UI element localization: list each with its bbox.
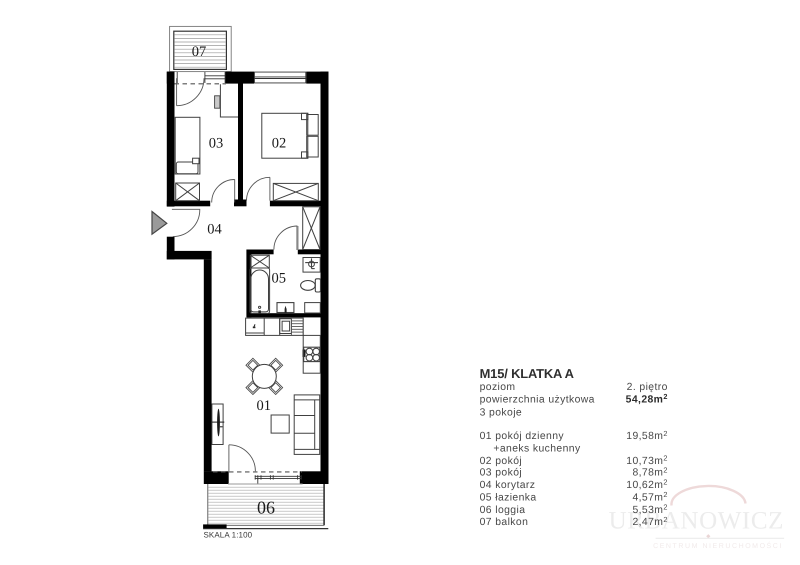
svg-text:02 pokój: 02 pokój xyxy=(480,456,522,467)
svg-text:+aneks kuchenny: +aneks kuchenny xyxy=(493,444,581,455)
svg-text:3 pokoje: 3 pokoje xyxy=(480,407,522,418)
svg-text:2. piętro: 2. piętro xyxy=(627,382,668,393)
svg-text:19,58m2: 19,58m2 xyxy=(626,429,668,442)
svg-text:04 korytarz: 04 korytarz xyxy=(480,480,536,491)
svg-text:03 pokój: 03 pokój xyxy=(480,468,522,479)
svg-text:4,57m2: 4,57m2 xyxy=(632,490,667,503)
svg-text:06: 06 xyxy=(257,497,275,517)
svg-text:05 łazienka: 05 łazienka xyxy=(480,492,537,503)
svg-text:04: 04 xyxy=(207,222,222,238)
svg-text:CENTRUM NIERUCHOMOŚCI: CENTRUM NIERUCHOMOŚCI xyxy=(653,541,783,550)
svg-text:M15/ KLATKA A: M15/ KLATKA A xyxy=(480,366,574,381)
svg-text:54,28m2: 54,28m2 xyxy=(626,392,668,405)
svg-text:powierzchnia użytkowa: powierzchnia użytkowa xyxy=(480,395,595,406)
svg-text:2,47m2: 2,47m2 xyxy=(632,515,667,528)
svg-text:01 pokój dzienny: 01 pokój dzienny xyxy=(480,431,565,442)
svg-text:5,53m2: 5,53m2 xyxy=(632,502,667,515)
svg-text:poziom: poziom xyxy=(480,382,516,393)
svg-text:10,62m2: 10,62m2 xyxy=(626,478,668,491)
svg-text:07: 07 xyxy=(192,44,207,60)
svg-text:10,73m2: 10,73m2 xyxy=(626,454,668,467)
svg-text:06 loggia: 06 loggia xyxy=(480,505,526,516)
svg-text:07 balkon: 07 balkon xyxy=(480,517,529,528)
svg-text:SKALA 1:100: SKALA 1:100 xyxy=(204,531,253,540)
svg-text:8,78m2: 8,78m2 xyxy=(632,465,667,478)
svg-text:01: 01 xyxy=(257,398,272,414)
svg-text:02: 02 xyxy=(272,136,287,152)
svg-text:03: 03 xyxy=(209,136,224,152)
svg-text:05: 05 xyxy=(272,270,287,286)
